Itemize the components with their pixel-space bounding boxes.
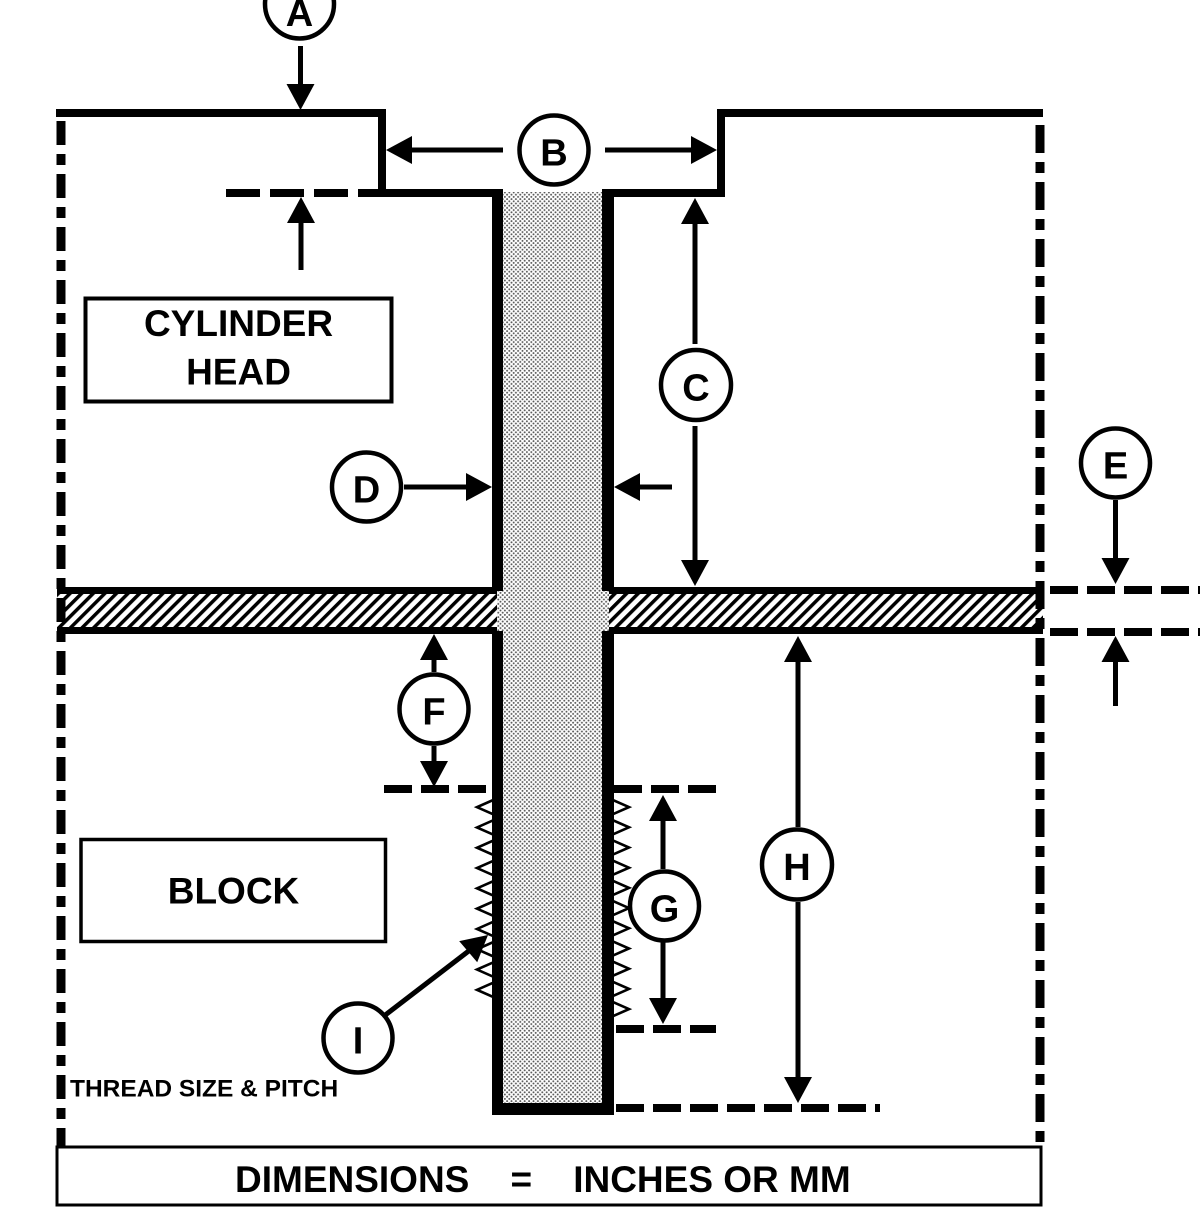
svg-text:B: B [540,133,567,175]
svg-text:DIMENSIONS = INCHES OR M: DIMENSIONS = INCHES OR MM [235,1159,851,1200]
svg-text:D: D [353,470,380,512]
svg-text:I: I [353,1021,364,1063]
svg-text:G: G [650,889,680,931]
svg-text:C: C [682,368,709,410]
svg-text:BLOCK: BLOCK [168,871,300,912]
svg-text:H: H [783,847,810,889]
svg-text:A: A [286,0,313,35]
svg-text:CYLINDER: CYLINDER [144,303,333,344]
svg-text:THREAD SIZE & PITCH: THREAD SIZE & PITCH [70,1076,338,1103]
svg-text:HEAD: HEAD [186,352,291,393]
svg-text:F: F [422,692,445,734]
svg-text:E: E [1103,446,1128,488]
